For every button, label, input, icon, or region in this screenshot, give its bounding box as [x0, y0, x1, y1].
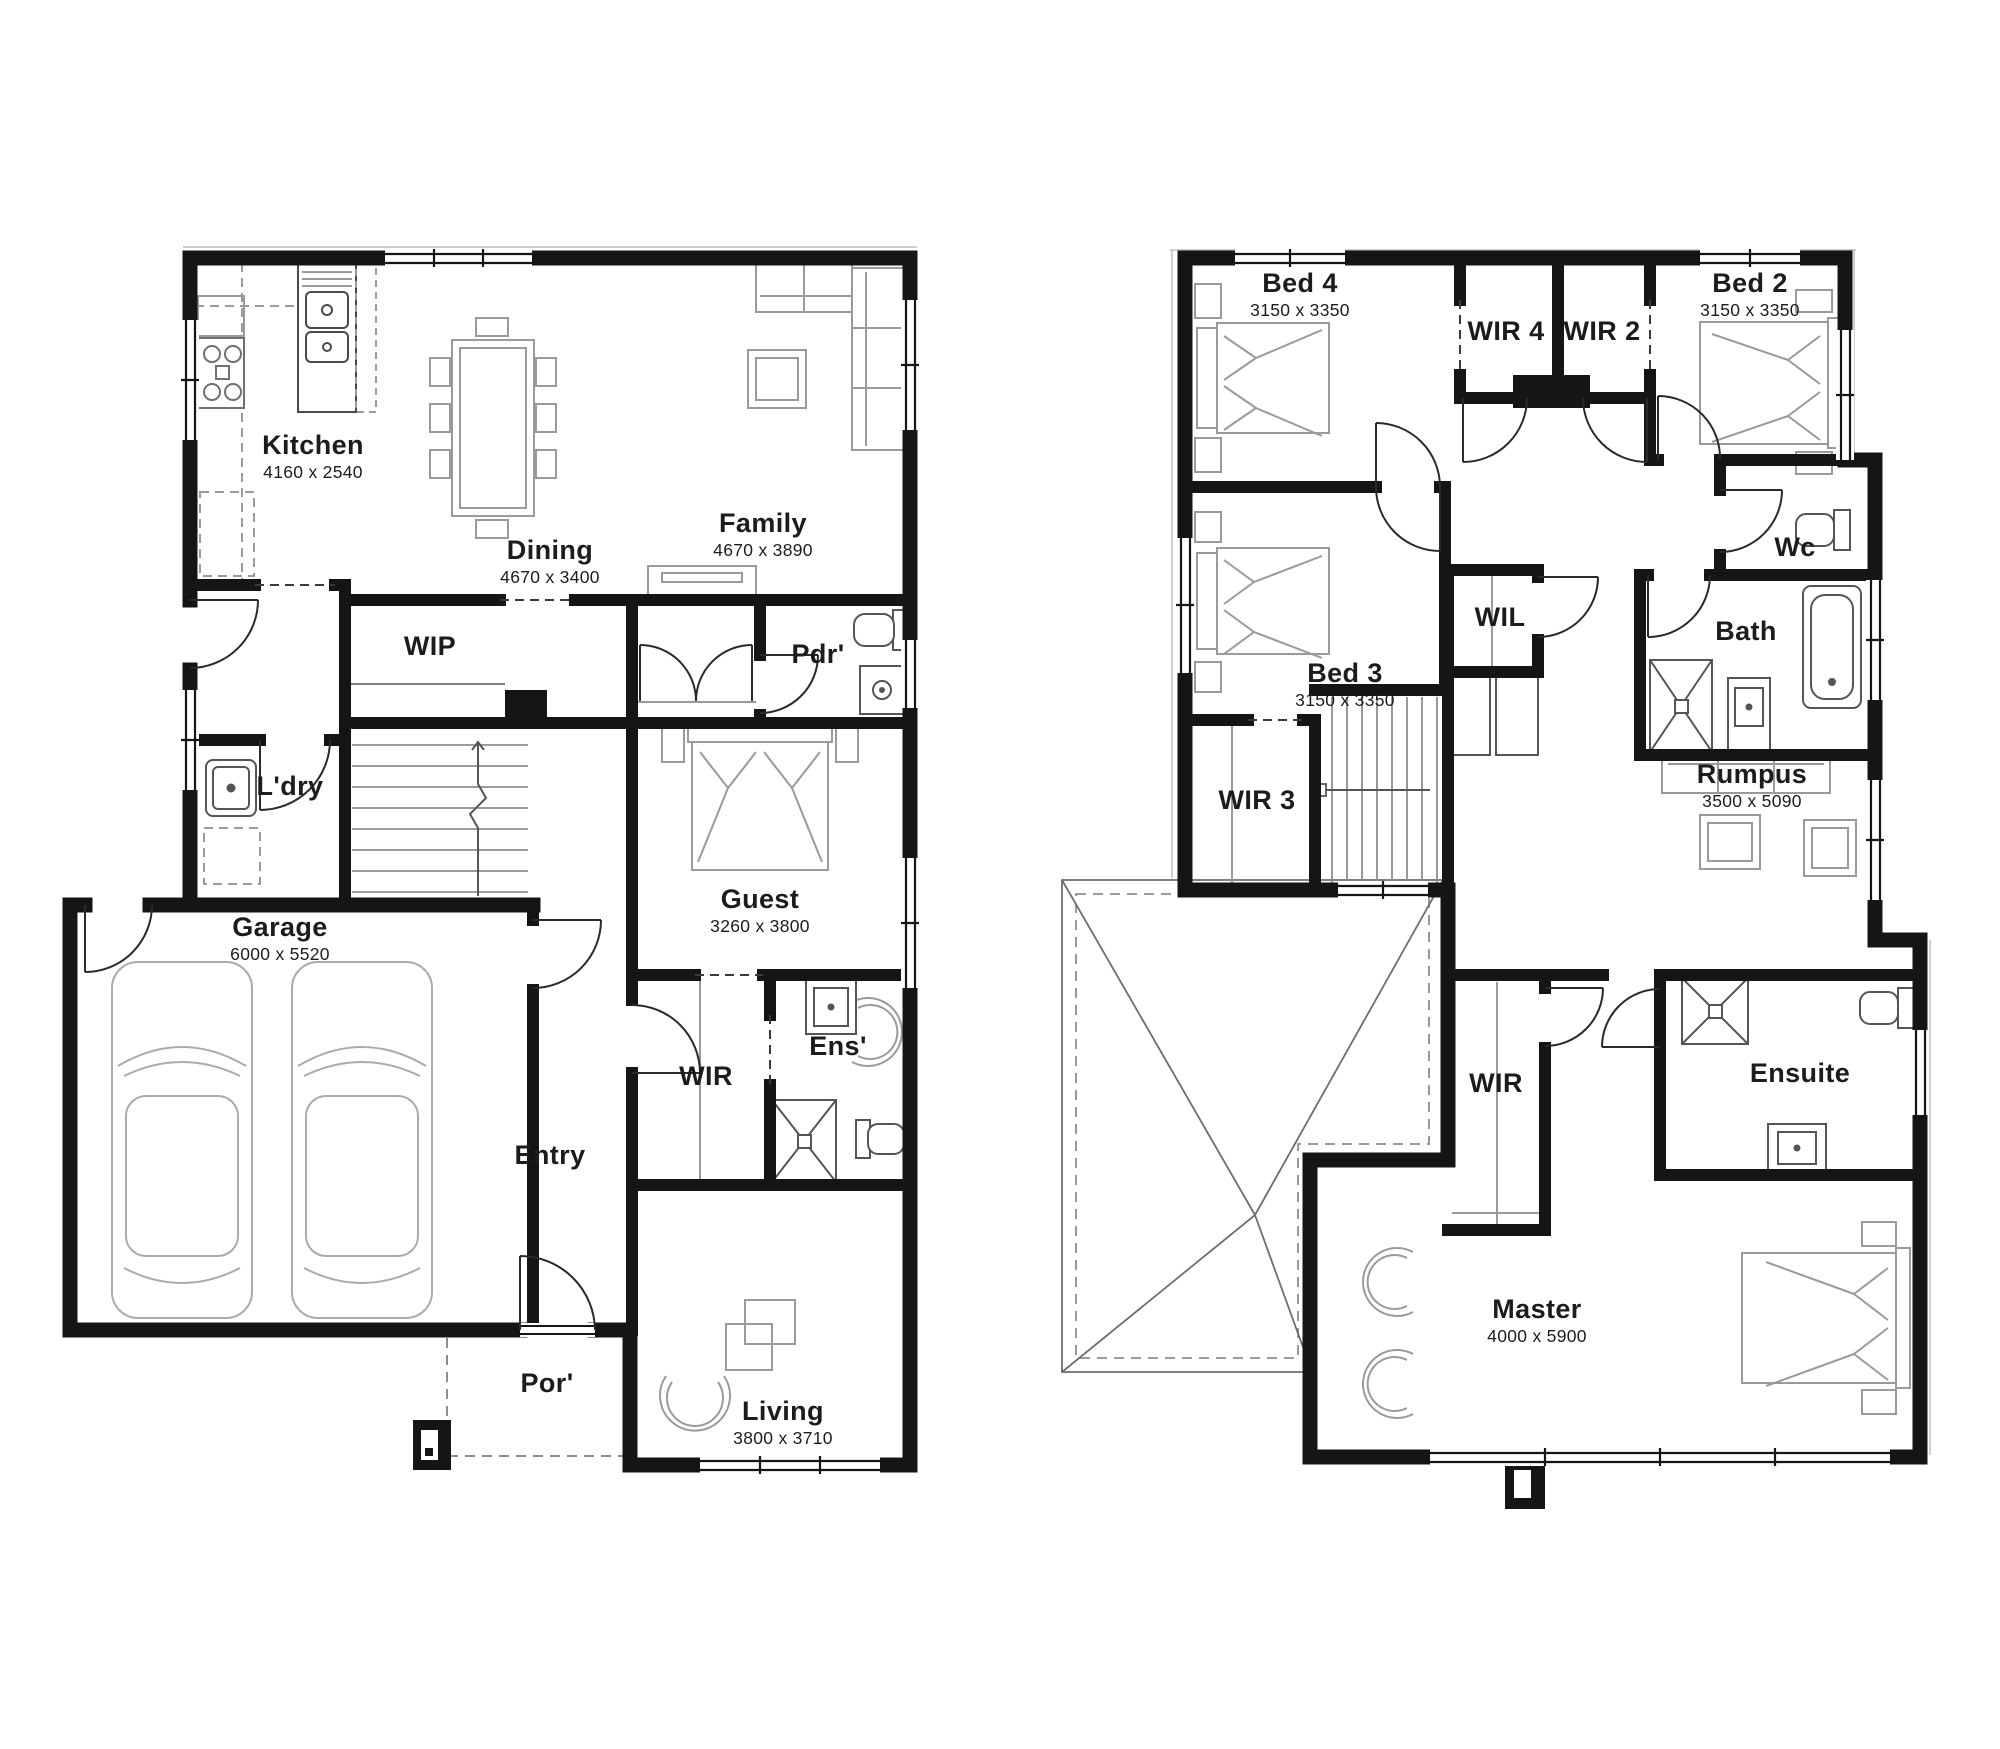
- room-label-wir4: WIR 4: [1467, 318, 1544, 345]
- room-label-master: Master4000 x 5900: [1487, 1296, 1587, 1346]
- coffee-table: [748, 350, 806, 408]
- room-label-pdr: Pdr': [791, 641, 844, 668]
- porch: [413, 1338, 628, 1470]
- stairs-ground: [352, 742, 528, 896]
- car-icon: [112, 962, 252, 1318]
- room-label-bed3: Bed 33150 x 3350: [1295, 660, 1395, 710]
- shower-icon: [1650, 660, 1712, 752]
- ground-floor-plan: [70, 247, 919, 1474]
- armchair-icon: [1363, 1248, 1413, 1418]
- vanity-icon: [1728, 678, 1770, 752]
- room-label-wc: Wc: [1774, 534, 1815, 561]
- basin-icon: [860, 666, 904, 714]
- lower-storey-outline: [1170, 250, 1930, 1455]
- room-label-bed2: Bed 23150 x 3350: [1700, 270, 1800, 320]
- room-label-kitchen: Kitchen4160 x 2540: [262, 432, 364, 482]
- car-icon: [292, 962, 432, 1318]
- room-label-rumpus: Rumpus3500 x 5090: [1697, 761, 1807, 811]
- room-label-wip: WIP: [404, 633, 456, 660]
- fridge-space: [200, 492, 254, 576]
- room-label-wir-ground: WIR: [679, 1063, 733, 1090]
- dining-table: [430, 318, 556, 538]
- robe-divider-block: [1513, 375, 1590, 408]
- room-label-por: Por': [520, 1370, 573, 1397]
- armchair-icon: [660, 1376, 730, 1431]
- master-post: [1505, 1461, 1545, 1509]
- robe-double-doors: [636, 645, 756, 702]
- room-label-ensuite: Ensuite: [1750, 1060, 1850, 1087]
- toilet-icon: [856, 1120, 904, 1158]
- island-bench: [298, 264, 376, 412]
- washer-space: [204, 828, 260, 884]
- roof-outline: [1062, 880, 1443, 1372]
- family-sofa: [756, 262, 906, 450]
- room-label-wir-upper: WIR: [1469, 1070, 1523, 1097]
- laundry-tub-icon: [206, 760, 256, 816]
- tv-unit: [648, 566, 756, 596]
- toilet-icon: [1860, 988, 1914, 1028]
- room-label-garage: Garage6000 x 5520: [230, 914, 330, 964]
- room-label-family: Family4670 x 3890: [713, 510, 813, 560]
- shower-icon: [1682, 978, 1748, 1044]
- linen-closet: [1496, 676, 1538, 755]
- stove-icon: [198, 338, 244, 408]
- linen-closet: [1448, 676, 1490, 755]
- floor-plan-page: Kitchen4160 x 2540 Dining4670 x 3400 Fam…: [0, 0, 2000, 1749]
- toilet-icon: [854, 610, 909, 650]
- room-label-wil: WIL: [1475, 604, 1526, 631]
- floor-plan-drawing: [0, 0, 2000, 1749]
- room-label-dining: Dining4670 x 3400: [500, 537, 600, 587]
- master-bed: [1742, 1222, 1910, 1414]
- pantry-return-wall: [505, 690, 547, 723]
- room-label-bed4: Bed 43150 x 3350: [1250, 270, 1350, 320]
- shower-icon: [772, 1100, 836, 1182]
- room-label-wir2: WIR 2: [1563, 318, 1640, 345]
- porch-post: [413, 1420, 451, 1470]
- vanity-icon: [806, 980, 856, 1034]
- room-label-guest: Guest3260 x 3800: [710, 886, 810, 936]
- room-label-ldry: L'dry: [257, 773, 324, 800]
- bathtub-icon: [1803, 586, 1861, 708]
- guest-bed: [662, 728, 858, 870]
- room-label-wir3: WIR 3: [1218, 787, 1295, 814]
- room-label-bath: Bath: [1715, 618, 1777, 645]
- nesting-tables: [726, 1300, 795, 1370]
- vanity-icon: [1768, 1124, 1826, 1172]
- upper-windows: [1176, 249, 1929, 1466]
- room-label-ens: Ens': [809, 1033, 867, 1060]
- room-label-living: Living3800 x 3710: [733, 1398, 833, 1448]
- rumpus-table: [1700, 815, 1856, 876]
- room-label-entry: Entry: [514, 1142, 585, 1169]
- stairs-upper: [1315, 697, 1437, 883]
